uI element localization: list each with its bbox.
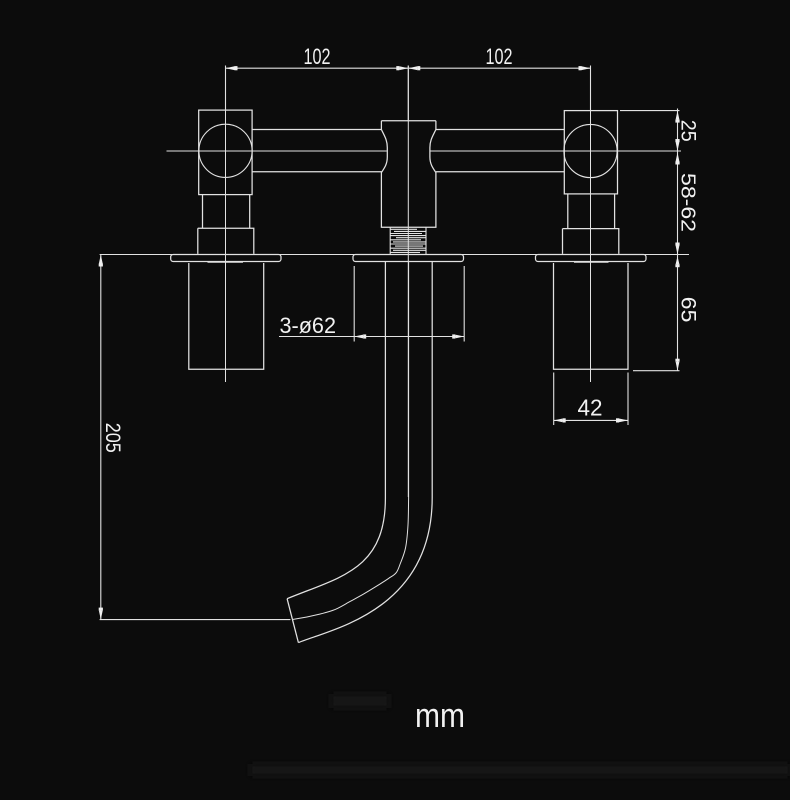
svg-text:102: 102 <box>486 44 513 69</box>
svg-text:65: 65 <box>677 297 701 323</box>
svg-text:mm: mm <box>415 697 465 735</box>
svg-text:25: 25 <box>677 120 701 142</box>
svg-text:205: 205 <box>101 423 125 453</box>
svg-text:58-62: 58-62 <box>677 173 700 232</box>
svg-text:102: 102 <box>304 44 331 69</box>
svg-text:3-ø62: 3-ø62 <box>280 313 337 338</box>
svg-text:42: 42 <box>578 395 603 421</box>
